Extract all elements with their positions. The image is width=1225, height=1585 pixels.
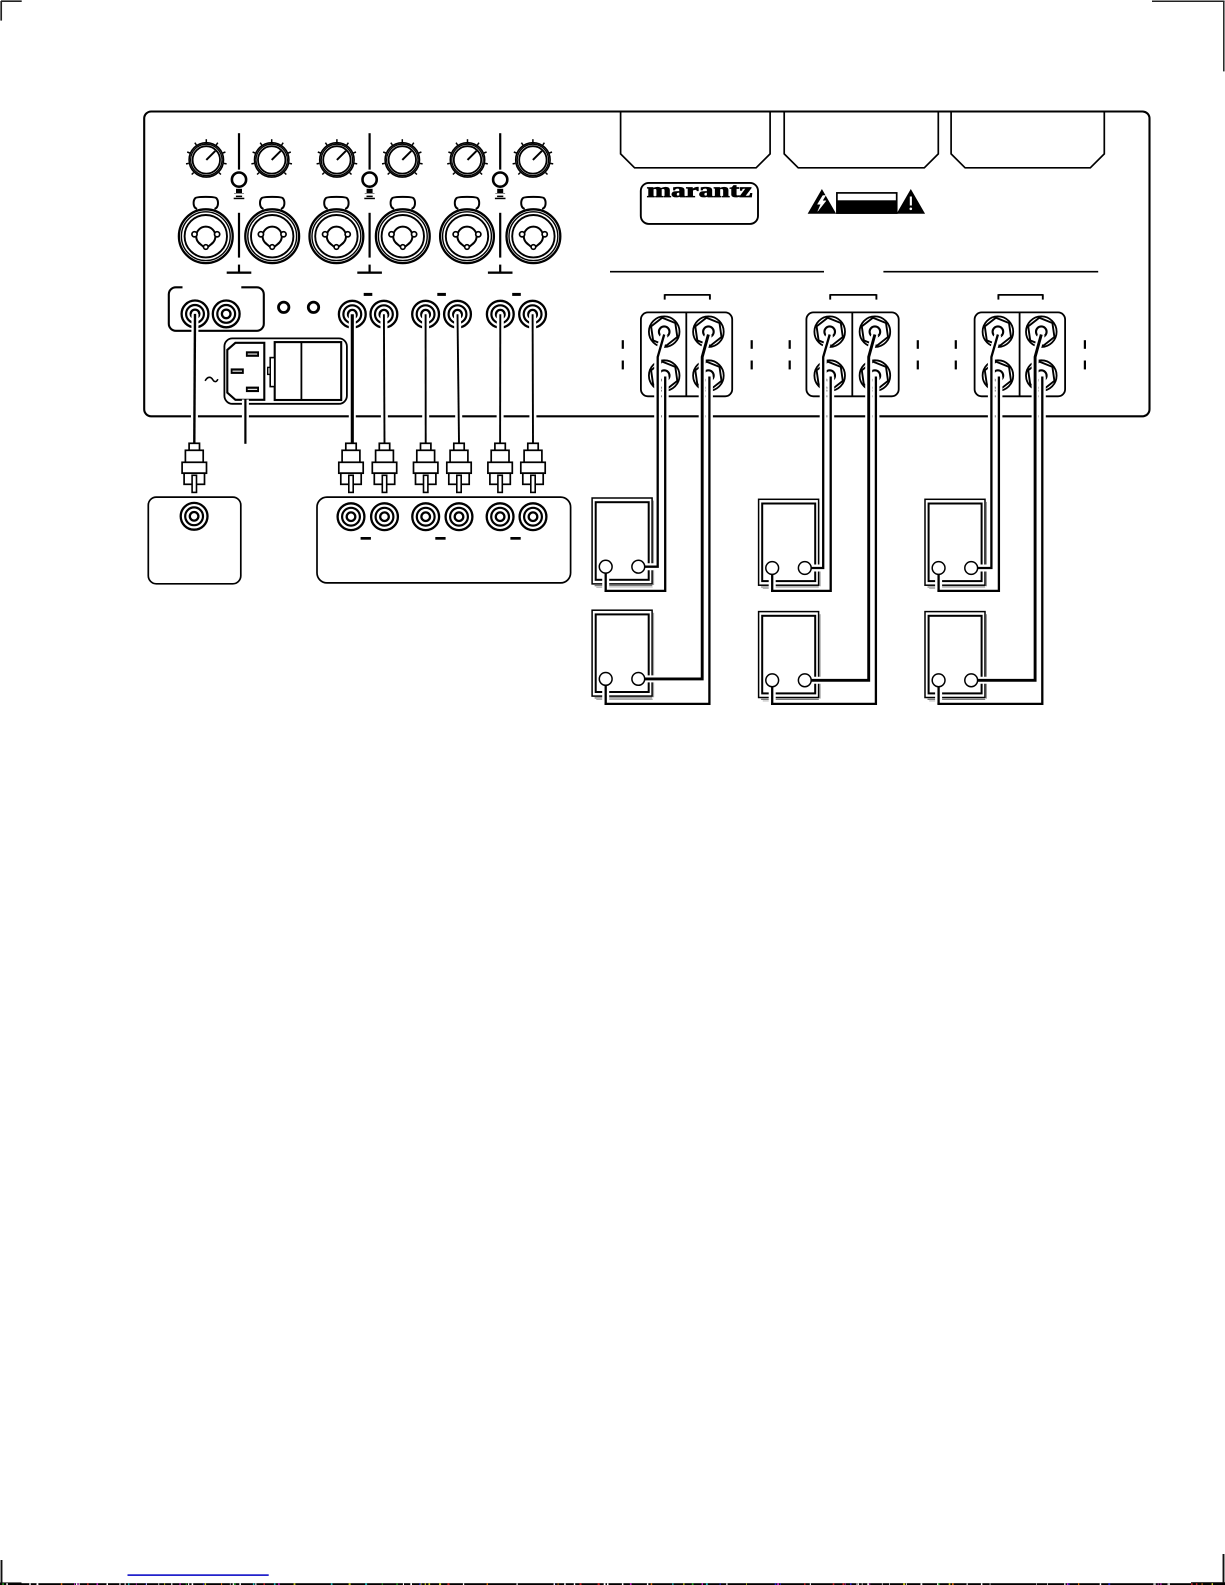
- svg-text:marantz: marantz: [647, 180, 753, 202]
